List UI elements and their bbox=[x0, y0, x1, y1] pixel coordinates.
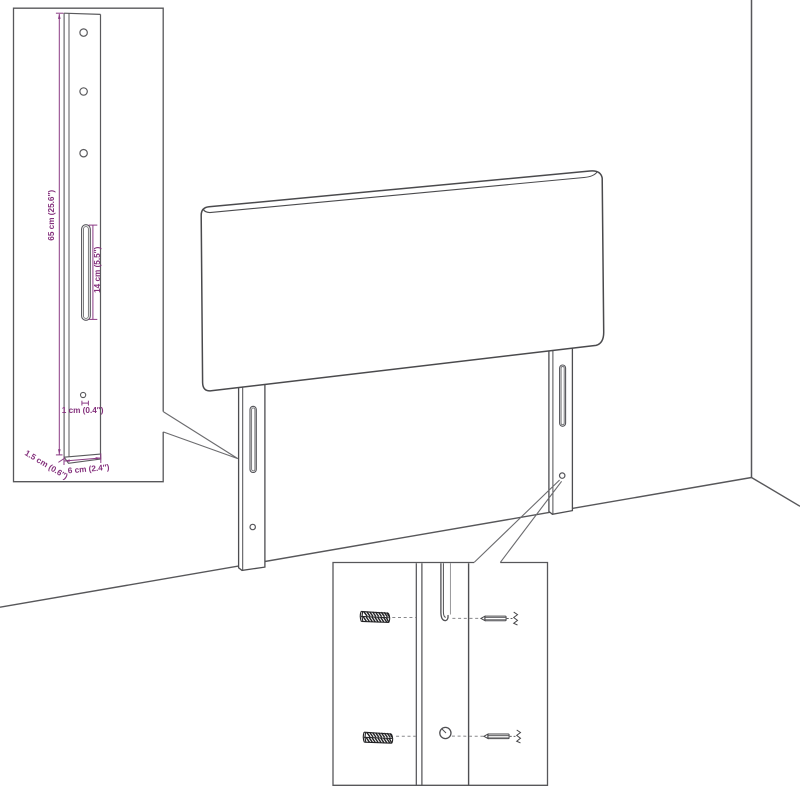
svg-text:14 cm (5.5″): 14 cm (5.5″) bbox=[93, 246, 102, 293]
svg-text:65 cm (25.6″): 65 cm (25.6″) bbox=[47, 190, 56, 241]
svg-text:1 cm (0.4″): 1 cm (0.4″) bbox=[62, 406, 104, 415]
